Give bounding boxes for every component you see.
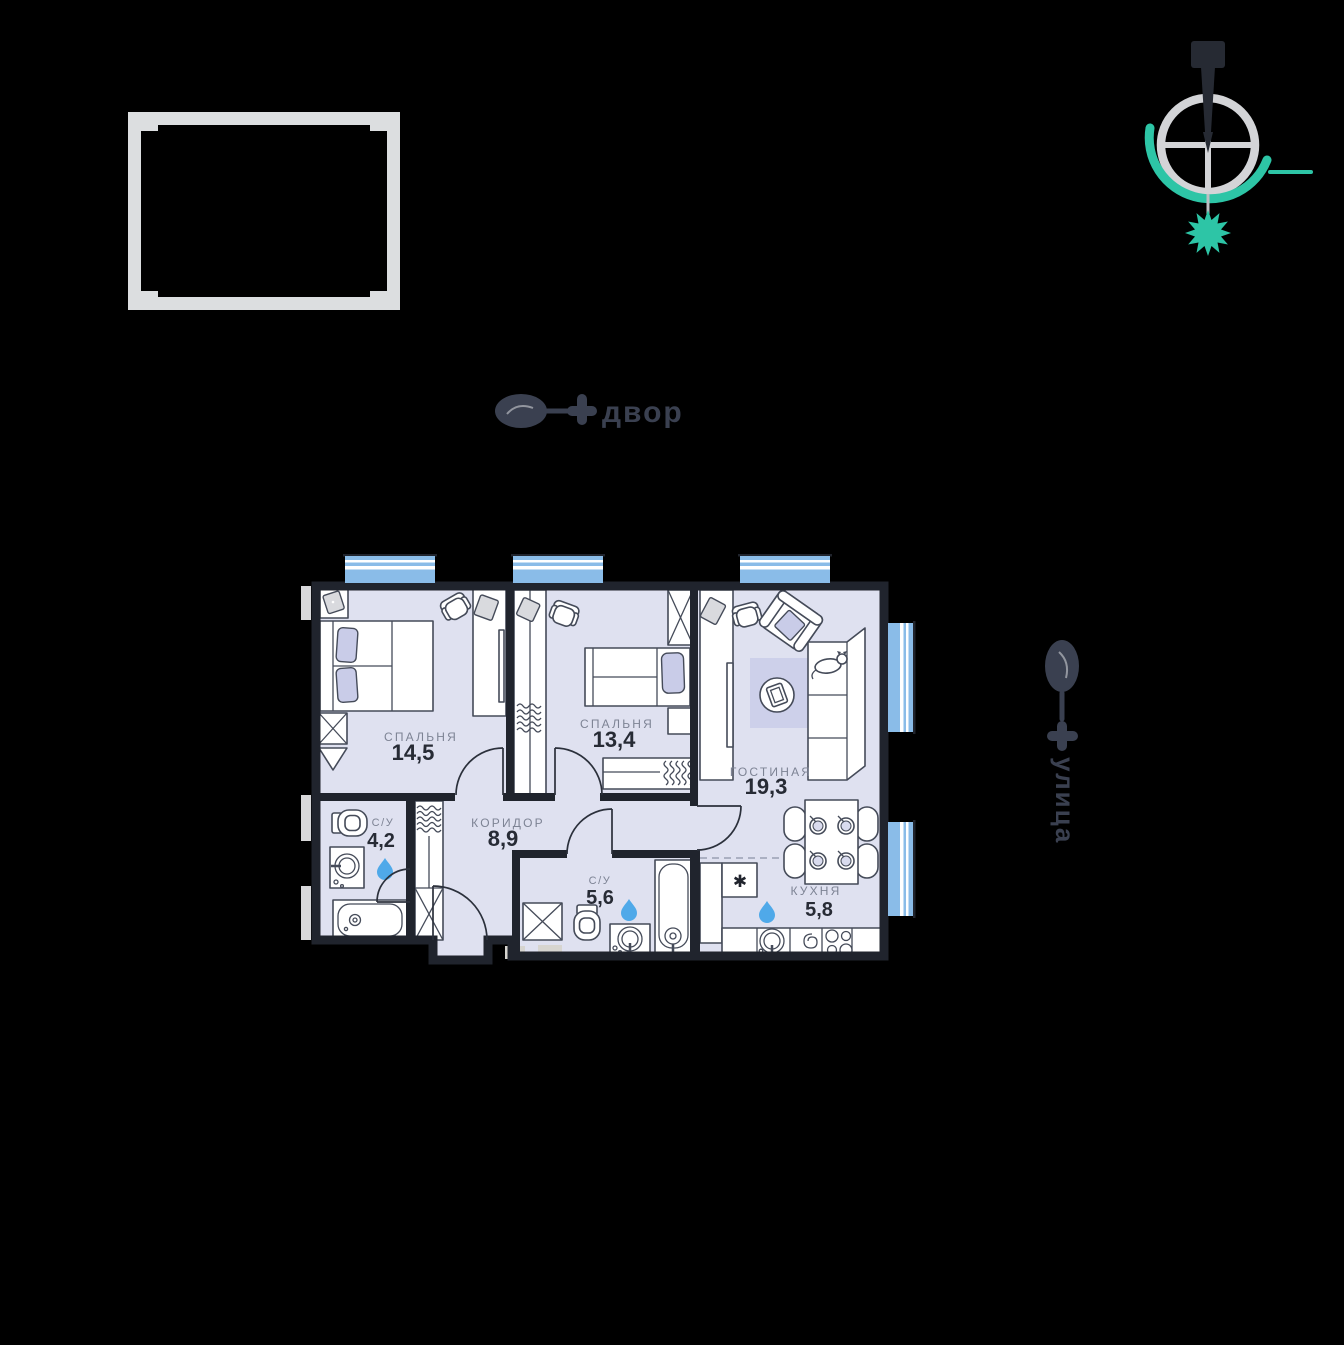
single-bed-icon <box>585 648 690 706</box>
tv-icon <box>727 663 733 747</box>
hall-closet-icon <box>415 801 443 940</box>
room-area-bedroom-2: 13,4 <box>593 727 637 752</box>
nightstand-icon <box>320 588 348 618</box>
courtyard-tree-icon <box>495 394 597 428</box>
courtyard-marker: двор <box>480 380 700 440</box>
bathtub-icon <box>333 900 407 940</box>
frame-corner-tab <box>132 291 158 305</box>
dining-table-icon <box>805 800 858 884</box>
toilet-icon <box>574 905 600 940</box>
compass-icon <box>1130 25 1325 270</box>
nightstand-icon <box>668 708 693 734</box>
fridge-icon: ✱ <box>722 863 757 897</box>
window-bedroom-2 <box>511 554 605 583</box>
desk-icon <box>473 589 506 716</box>
double-bed-icon <box>320 621 433 711</box>
window-bedroom-1 <box>343 554 437 583</box>
dining-chair-icon <box>784 807 806 841</box>
window-kitchen-side <box>888 820 916 918</box>
floor-plan: ✱ <box>295 540 940 990</box>
tv-unit-icon <box>700 590 733 780</box>
sofa-icon <box>808 628 865 780</box>
washbasin-icon <box>610 924 650 956</box>
room-name-kitchen: КУХНЯ <box>790 884 841 898</box>
legend-frame-box <box>128 112 400 310</box>
room-name-bathroom-2: С/У <box>589 875 612 887</box>
courtyard-label: двор <box>602 396 684 429</box>
frame-corner-tab <box>370 291 396 305</box>
floorplan-page: двор улица <box>0 0 1344 1345</box>
window-living-side <box>888 621 916 734</box>
dresser-icon <box>603 758 692 789</box>
room-area-bathroom-2: 5,6 <box>586 887 614 909</box>
street-label: улица <box>1050 757 1080 844</box>
compass-sun-star <box>1185 210 1231 256</box>
wardrobe-icon <box>668 590 693 645</box>
street-tree-icon <box>1045 640 1079 751</box>
room-corridor-furniture <box>415 801 443 940</box>
tall-cabinet-icon <box>700 863 722 943</box>
room-area-bathroom-1: 4,2 <box>367 830 395 852</box>
closet-icon <box>514 590 546 795</box>
frame-corner-tab <box>370 117 396 131</box>
dining-chair-icon <box>784 844 806 878</box>
room-name-bathroom-1: С/У <box>372 817 395 829</box>
washbasin-icon <box>330 847 364 888</box>
dining-chair-icon <box>856 807 878 841</box>
frame-corner-tab <box>132 117 158 131</box>
window-living <box>738 554 832 583</box>
pillow <box>336 667 358 702</box>
street-marker: улица <box>1030 620 1110 855</box>
toilet-icon <box>332 810 367 836</box>
room-area-corridor: 8,9 <box>488 826 519 851</box>
room-area-kitchen: 5,8 <box>805 899 833 921</box>
dining-chair-icon <box>856 844 878 878</box>
pillow <box>336 627 358 662</box>
room-area-bedroom-1: 14,5 <box>392 740 435 765</box>
pillow <box>661 653 684 694</box>
fridge-symbol: ✱ <box>733 872 747 891</box>
room-area-living: 19,3 <box>745 774 788 799</box>
coffee-table-icon <box>760 678 794 712</box>
washing-machine-icon <box>523 903 562 940</box>
bathtub-icon <box>655 860 692 956</box>
